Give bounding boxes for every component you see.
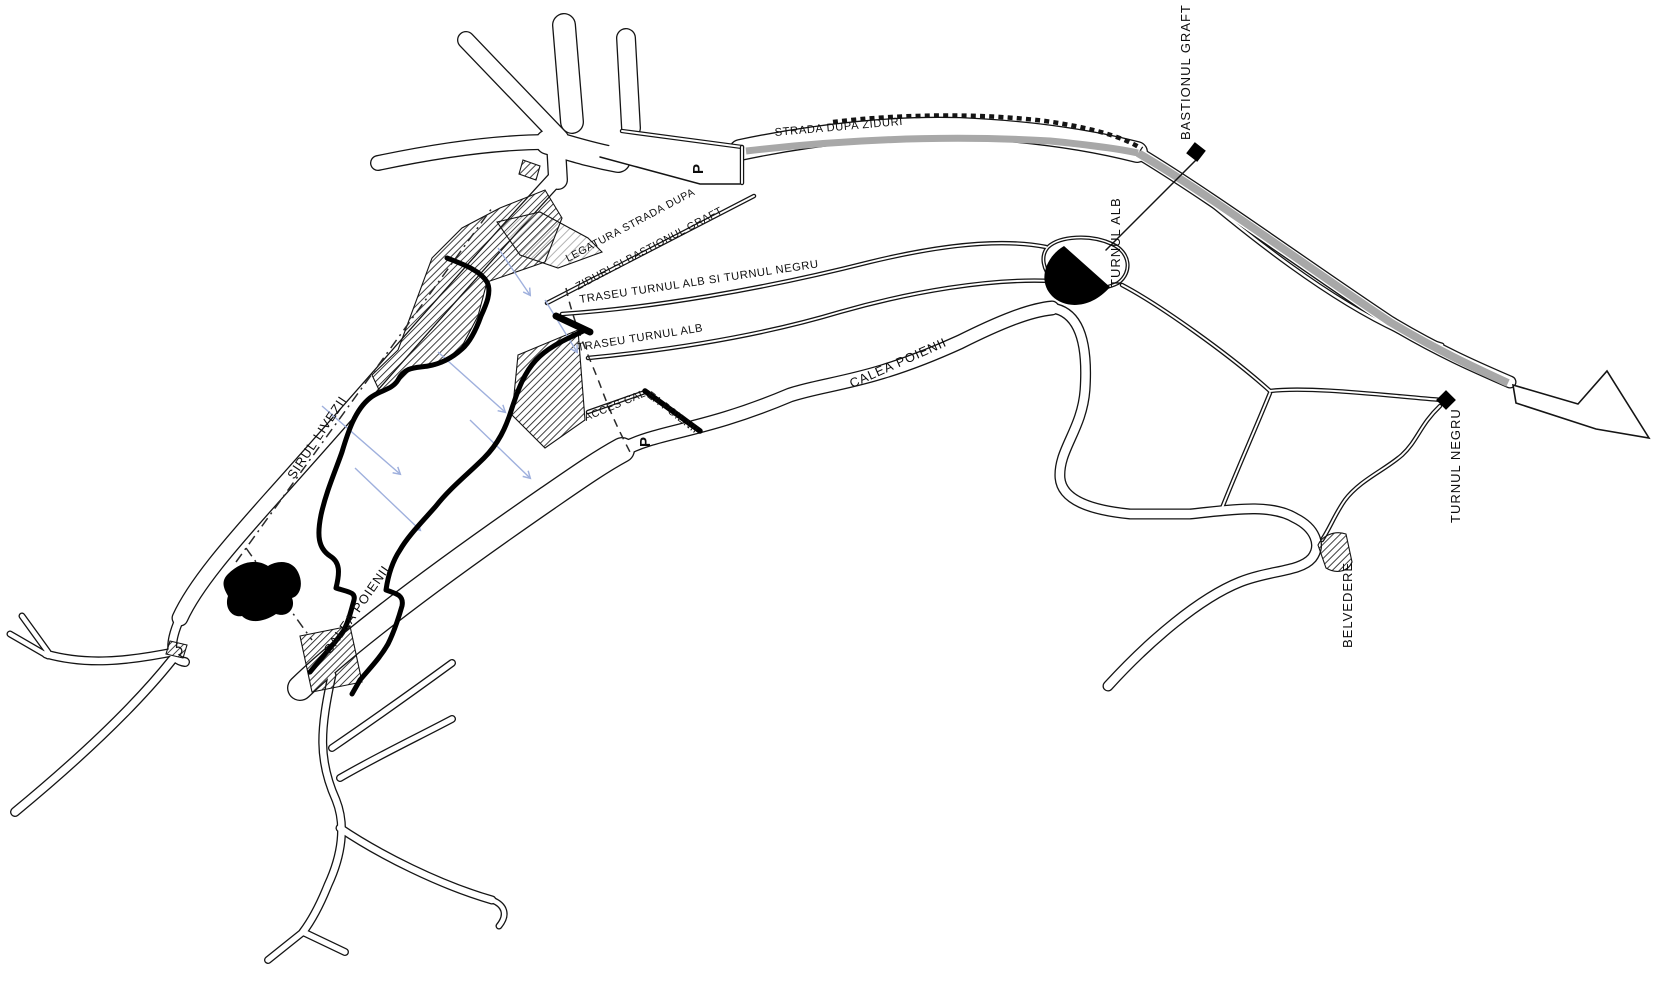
trail-v-southwest <box>1222 393 1270 508</box>
direction-arrow-shape <box>1513 371 1649 438</box>
traseu-start-mark <box>556 316 590 332</box>
label-parking-2: P <box>637 436 654 447</box>
road-west-link <box>46 651 178 661</box>
road-southwest <box>15 660 172 812</box>
road-branch-sw-prong <box>268 932 303 960</box>
wall-band-diagonal <box>1138 153 1508 383</box>
label-turnul-alb: TURNUL ALB <box>1108 197 1123 287</box>
road-calea-poienii-serpentine <box>1052 308 1317 686</box>
label-bastionul-graft: BASTIONUL GRAFT <box>1178 4 1193 140</box>
label-sirul-livezii: SIRUL LIVEZII <box>284 393 350 482</box>
road-nw-arm <box>466 40 560 138</box>
road-branch-s-prong <box>303 932 345 952</box>
label-calea-poienii-upper: CALEA POIENII <box>847 334 949 390</box>
parking-area-top <box>600 130 742 184</box>
label-traseu-alb: TRASEU TURNUL ALB <box>577 322 704 354</box>
trail-turnul-negru-to-belvedere <box>1322 406 1440 540</box>
bastionul-graft-marker <box>1186 142 1206 162</box>
road-north-stub-1 <box>564 25 572 122</box>
turnul-alb-tower <box>1044 246 1110 305</box>
label-parking-1: P <box>690 163 707 174</box>
trail-loop-to-v <box>1122 285 1270 391</box>
road-branch-main <box>303 675 342 932</box>
pond-blob <box>224 562 301 621</box>
road-north-stub-2 <box>626 38 631 128</box>
label-turnul-negru: TURNUL NEGRU <box>1448 408 1463 523</box>
hatch-crosswalk-top <box>519 160 540 180</box>
trail-loop-to-v <box>1122 285 1270 391</box>
site-plan-map: STRADA DUPA ZIDURI LEGATURA STRADA DUPA … <box>0 0 1653 984</box>
label-belvedere: BELVEDERE <box>1340 562 1355 648</box>
road-calea-poienii-serpentine <box>1052 308 1317 686</box>
